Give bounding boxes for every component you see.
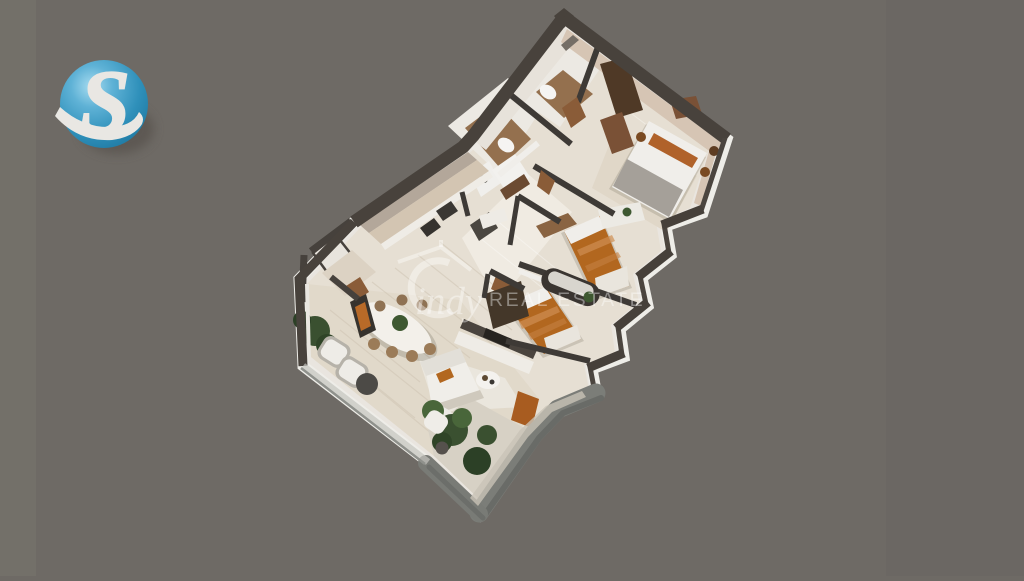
svg-text:indy: indy <box>415 280 483 323</box>
svg-text:REAL ESTATE: REAL ESTATE <box>489 289 645 311</box>
